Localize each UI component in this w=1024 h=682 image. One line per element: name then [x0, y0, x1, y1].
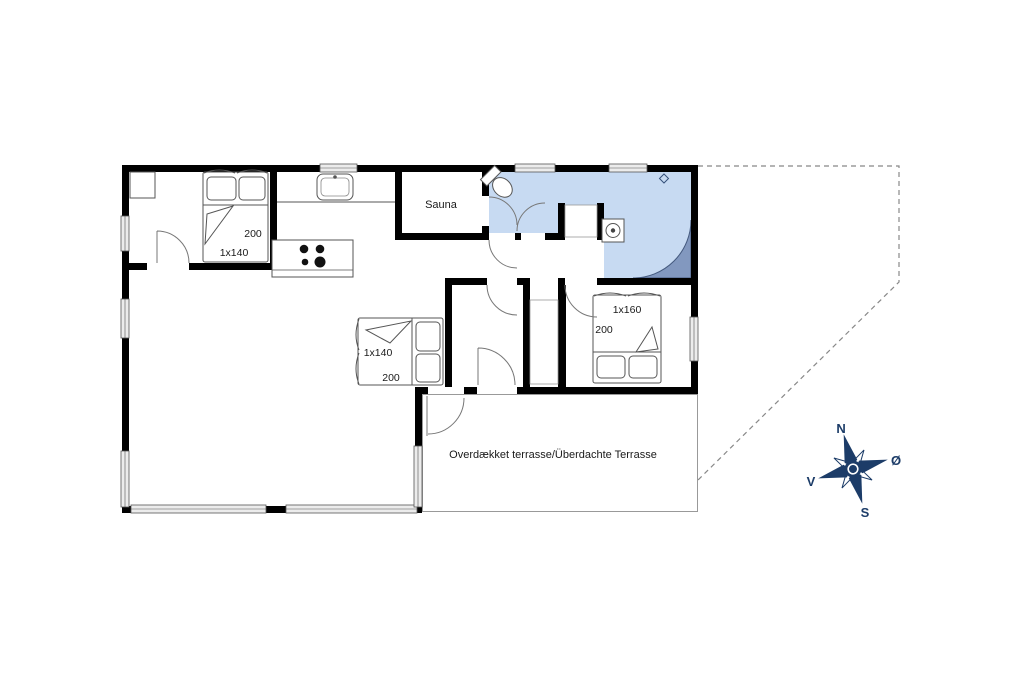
pillow	[629, 356, 657, 378]
door-entry	[478, 348, 515, 385]
window	[690, 317, 698, 361]
window	[121, 451, 129, 507]
washing-machine-icon	[602, 219, 624, 242]
compass-label-south: S	[861, 505, 870, 520]
opening-bedroom1	[147, 263, 189, 270]
pillow	[239, 177, 265, 200]
floor-plan-page: Overdækket terrasse/Überdachte Terrasse	[0, 0, 1024, 682]
compass-label-north: N	[836, 421, 845, 436]
terrace-label: Overdækket terrasse/Überdachte Terrasse	[449, 449, 657, 461]
window	[609, 164, 647, 172]
wall-vestibule-east	[523, 278, 530, 387]
plot-boundary-line	[698, 166, 899, 480]
wall-sauna-west	[395, 172, 402, 240]
pillow	[207, 177, 236, 200]
bathroom-closet	[565, 205, 597, 237]
wall-sauna-south	[395, 233, 489, 240]
opening-bath-b	[521, 233, 545, 240]
window	[121, 216, 129, 251]
sauna-label: Sauna	[425, 199, 458, 211]
compass-label-west: V	[807, 474, 816, 489]
wall-bedroom3-west	[558, 285, 566, 387]
hall-closet	[530, 300, 558, 384]
bed-length-label: 200	[595, 324, 613, 336]
covered-terrace: Overdækket terrasse/Überdachte Terrasse	[423, 395, 698, 512]
pillow	[597, 356, 625, 378]
window	[131, 505, 266, 513]
wardrobe-bedroom1	[130, 172, 155, 198]
kitchen-sink-icon	[317, 174, 353, 200]
opening-entry-door	[477, 387, 517, 394]
bed-size-label: 1x140	[364, 347, 393, 359]
window	[121, 299, 129, 338]
opening-sauna	[482, 196, 489, 226]
door-bedroom3	[565, 285, 597, 317]
wall-bath-closet-west	[558, 203, 565, 240]
window	[320, 164, 357, 172]
pillow	[416, 322, 440, 351]
door-vestibule	[487, 285, 517, 315]
door-bathroom-hall	[489, 240, 517, 268]
floor-plan-canvas: Overdækket terrasse/Überdachte Terrasse	[0, 0, 1024, 682]
bed-length-label: 200	[382, 372, 400, 384]
door-bedroom1	[157, 231, 189, 263]
opening-vestibule-hall	[487, 278, 517, 285]
bed-size-label: 1x160	[613, 304, 642, 316]
opening-bedroom3	[565, 278, 597, 285]
compass-label-east: Ø	[891, 453, 901, 468]
compass-rose-icon: N S Ø V	[807, 421, 901, 520]
pillow	[416, 354, 440, 382]
opening-terrace-door	[428, 387, 464, 394]
wall-bath-jamb	[515, 233, 521, 240]
compass-star	[809, 425, 897, 513]
stove-burners-icon	[272, 240, 353, 277]
bed-alcove: 1x140 200	[356, 318, 443, 385]
window	[414, 446, 422, 507]
opening-bath-a	[489, 233, 515, 240]
window	[515, 164, 555, 172]
wall-bath-south	[545, 233, 558, 240]
window	[286, 505, 417, 513]
bed-length-label: 200	[244, 228, 262, 240]
bed-bedroom3: 1x160 200	[593, 293, 661, 383]
wall-vestibule-west	[445, 278, 452, 387]
bed-bedroom1: 200 1x140	[203, 170, 268, 262]
bed-size-label: 1x140	[220, 247, 249, 259]
